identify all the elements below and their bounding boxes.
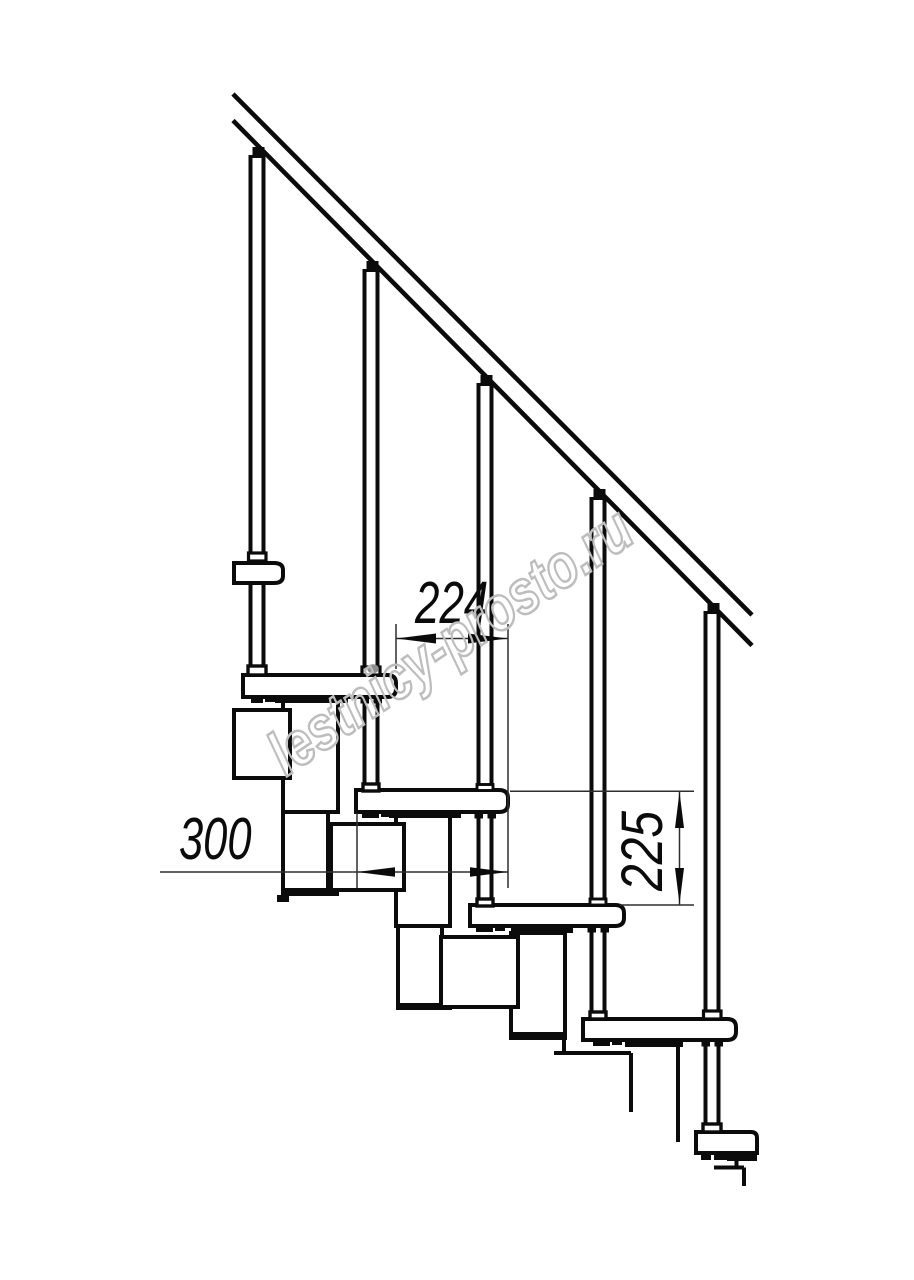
svg-text:300: 300 [179,805,252,871]
svg-text:225: 225 [611,811,675,892]
